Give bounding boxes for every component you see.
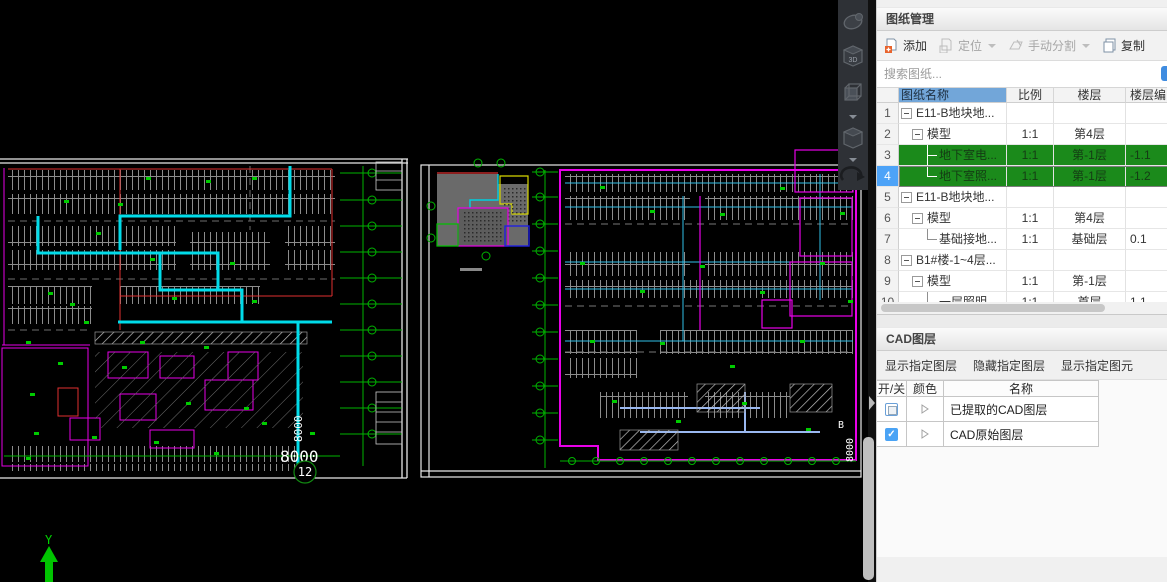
sheet-search (877, 61, 1167, 88)
cad-canvas[interactable]: 8000 8000 12 (0, 0, 876, 582)
copy-sheet-label: 复制 (1121, 37, 1145, 54)
cad-layers-title: CAD图层 (877, 327, 1167, 351)
sheet-row[interactable]: 5 E11-B地块地... (877, 187, 1167, 208)
sheet-manager-title: 图纸管理 (877, 7, 1167, 31)
view-cube-3d-icon[interactable]: 3D (844, 46, 862, 66)
sheet-table: 图纸名称 比例 楼层 楼层编... 1 E11-B地块地... 2 模型 1:1… (877, 88, 1167, 302)
view-toolbar: 3D (838, 0, 868, 190)
locate-sheet-label: 定位 (958, 37, 982, 54)
collapse-icon[interactable] (901, 108, 912, 119)
layer-checkbox-checked[interactable] (885, 428, 898, 441)
copy-sheet-button[interactable]: 复制 (1102, 37, 1145, 54)
expand-triangle-icon[interactable] (921, 429, 929, 439)
sheet-row[interactable]: 2 模型 1:1 第4层 (877, 124, 1167, 145)
vertical-scrollbar-thumb[interactable] (863, 437, 874, 580)
layer-row[interactable]: CAD原始图层 (877, 422, 1099, 447)
chevron-down-icon (1082, 44, 1090, 48)
collapse-icon[interactable] (901, 192, 912, 203)
header-row-number (877, 88, 899, 103)
cad-layer-buttons: 显示指定图层 隐藏指定图层 显示指定图元 (877, 351, 1167, 380)
show-specified-layers-button[interactable]: 显示指定图层 (885, 357, 957, 374)
ucs-axis-label: Y (45, 533, 53, 547)
sheet-row-selected[interactable]: 4 地下室照... 1:1 第-1层 -1.2 (877, 166, 1167, 187)
manual-split-icon (1008, 39, 1024, 53)
panel-top-strip (877, 0, 1167, 7)
search-filter-icon[interactable] (1161, 66, 1167, 81)
tree-branch (922, 166, 939, 187)
sheet-row[interactable]: 9 模型 1:1 第-1层 (877, 271, 1167, 292)
collapse-icon[interactable] (901, 255, 912, 266)
header-color: 颜色 (907, 380, 944, 397)
sheet-row[interactable]: 8 B1#楼-1~4层... (877, 250, 1167, 271)
sheet-row[interactable]: 3 地下室电... 1:1 第-1层 -1.1 (877, 145, 1167, 166)
ucs-axis-icon: Y (40, 533, 58, 582)
sheet-table-header: 图纸名称 比例 楼层 楼层编... (877, 88, 1167, 103)
sheet-row[interactable]: 1 E11-B地块地... (877, 103, 1167, 124)
collapse-icon[interactable] (912, 129, 923, 140)
locate-sheet-button[interactable]: 定位 (939, 37, 996, 54)
grid-letter-label: B (838, 420, 844, 431)
tree-branch (922, 229, 939, 250)
hscrollbar-thumb[interactable] (881, 304, 1105, 312)
dim-label-vertical-left: 8000 (292, 416, 305, 443)
cad-layer-table: 开/关 颜色 名称 已提取的CAD图层 (877, 380, 1167, 447)
manual-split-button[interactable]: 手动分割 (1008, 37, 1090, 54)
section-divider (877, 315, 1167, 327)
dim-label-vertical-right: 8000 (845, 438, 856, 462)
sheet-toolbar: 添加 定位 手动分割 (877, 31, 1167, 61)
collapse-icon[interactable] (912, 276, 923, 287)
header-floor: 楼层 (1054, 88, 1126, 103)
search-input[interactable] (877, 61, 1167, 87)
collapse-icon[interactable] (912, 213, 923, 224)
header-layer-name: 名称 (944, 380, 1099, 397)
tree-branch (922, 292, 939, 302)
sheet-manager-panel: 图纸管理 添加 定位 (876, 0, 1167, 582)
shaded-view-icon[interactable] (844, 128, 862, 148)
show-specified-entities-button[interactable]: 显示指定图元 (1061, 357, 1133, 374)
layer-row[interactable]: 已提取的CAD图层 (877, 397, 1099, 422)
hide-specified-layers-button[interactable]: 隐藏指定图层 (973, 357, 1045, 374)
locate-icon (939, 38, 954, 53)
sheet-row[interactable]: 10 一层照明 1:1 首层 1.1 (877, 292, 1167, 302)
layer-checkbox-partial[interactable] (885, 403, 898, 416)
sheet-row[interactable]: 7 基础接地... 1:1 基础层 0.1 (877, 229, 1167, 250)
left-floor-plan: 8000 8000 12 (0, 159, 408, 483)
sheet-table-hscrollbar[interactable] (877, 302, 1167, 315)
right-floor-plan: B 8000 (421, 150, 861, 477)
tree-branch (922, 145, 939, 166)
cad-layer-table-header: 开/关 颜色 名称 (877, 380, 1099, 397)
manual-split-label: 手动分割 (1028, 37, 1076, 54)
sheet-row[interactable]: 6 模型 1:1 第4层 (877, 208, 1167, 229)
svg-text:3D: 3D (849, 57, 858, 64)
copy-icon (1102, 38, 1117, 53)
add-sheet-label: 添加 (903, 37, 927, 54)
add-sheet-button[interactable]: 添加 (884, 37, 927, 54)
header-scale: 比例 (1007, 88, 1054, 103)
grid-bubble-number: 12 (298, 465, 312, 479)
expand-triangle-icon[interactable] (921, 404, 929, 414)
header-sheet-name: 图纸名称 (899, 88, 1007, 103)
header-toggle: 开/关 (877, 380, 907, 397)
add-icon (884, 38, 899, 53)
app-window: 8000 8000 12 (0, 0, 1167, 582)
header-floor-number: 楼层编... (1126, 88, 1167, 103)
chevron-down-icon (988, 44, 996, 48)
panel-empty-area (877, 447, 1167, 557)
